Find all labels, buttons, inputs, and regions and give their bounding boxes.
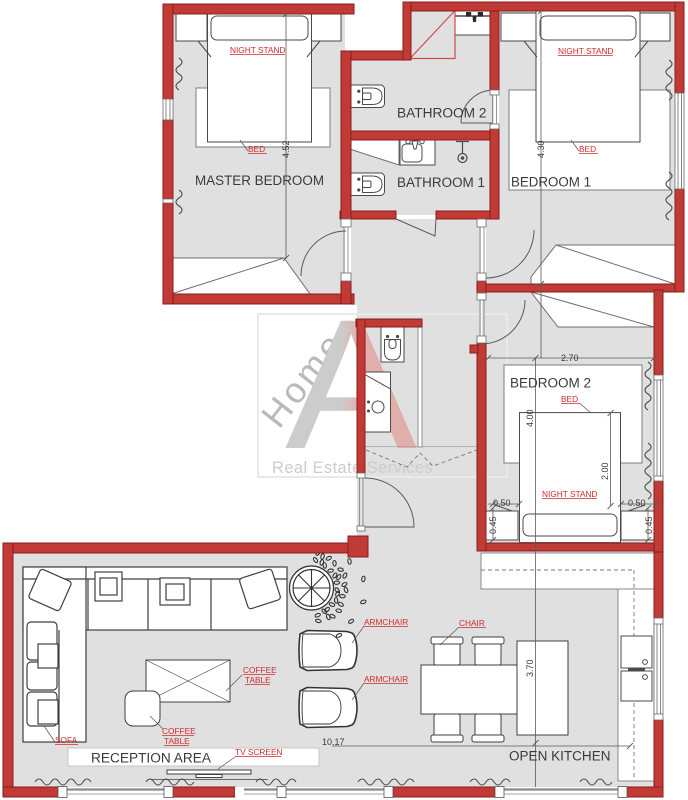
svg-text:TABLE: TABLE: [164, 736, 190, 746]
svg-text:NIGHT STAND: NIGHT STAND: [230, 45, 285, 55]
svg-text:0.50: 0.50: [493, 498, 511, 508]
svg-text:ARMCHAIR: ARMCHAIR: [364, 617, 408, 627]
svg-text:MASTER BEDROOM: MASTER BEDROOM: [195, 173, 324, 188]
svg-text:2.70: 2.70: [561, 353, 579, 363]
svg-text:10.17: 10.17: [322, 737, 345, 747]
svg-text:BATHROOM 1: BATHROOM 1: [397, 175, 485, 190]
svg-text:NIGHT STAND: NIGHT STAND: [558, 46, 613, 56]
svg-text:OPEN KITCHEN: OPEN KITCHEN: [509, 749, 611, 764]
svg-text:COFFEE: COFFEE: [243, 665, 277, 675]
svg-text:COFFEE: COFFEE: [162, 726, 196, 736]
svg-text:BED: BED: [579, 144, 596, 154]
svg-text:SOFA: SOFA: [55, 735, 78, 745]
svg-text:RECEPTION AREA: RECEPTION AREA: [91, 751, 211, 766]
svg-text:BED: BED: [561, 394, 578, 404]
svg-text:2.00: 2.00: [600, 462, 610, 480]
svg-text:TV SCREEN: TV SCREEN: [235, 747, 282, 757]
svg-text:BATHROOM 2: BATHROOM 2: [397, 106, 487, 121]
svg-text:Real Estate Services: Real Estate Services: [272, 459, 433, 477]
svg-text:CHAIR: CHAIR: [459, 618, 485, 628]
svg-text:0.50: 0.50: [628, 498, 646, 508]
svg-text:BEDROOM 1: BEDROOM 1: [511, 175, 591, 190]
svg-text:4.30: 4.30: [536, 140, 546, 158]
svg-text:4.52: 4.52: [281, 140, 291, 158]
svg-text:BED: BED: [248, 144, 265, 154]
svg-text:BEDROOM 2: BEDROOM 2: [510, 376, 591, 391]
svg-text:TABLE: TABLE: [245, 675, 271, 685]
svg-text:A: A: [285, 281, 417, 488]
svg-text:0.45: 0.45: [644, 516, 654, 534]
svg-text:NIGHT STAND: NIGHT STAND: [542, 489, 597, 499]
svg-text:4.00: 4.00: [525, 409, 535, 427]
svg-text:0.45: 0.45: [488, 516, 498, 534]
svg-text:3.70: 3.70: [525, 659, 535, 677]
svg-text:ARMCHAIR: ARMCHAIR: [364, 674, 408, 684]
